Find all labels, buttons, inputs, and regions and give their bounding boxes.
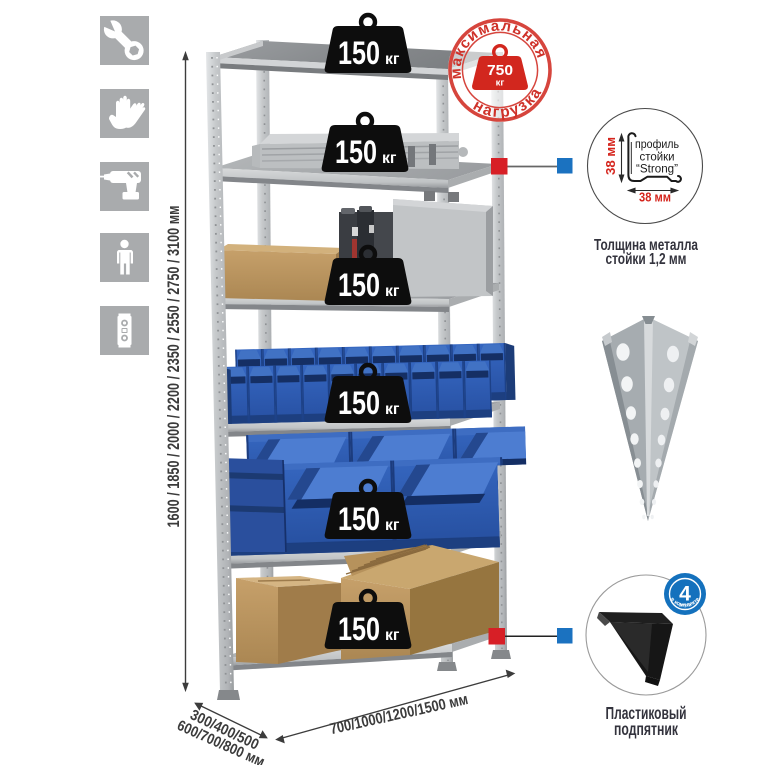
svg-text:профиль: профиль (635, 139, 679, 151)
svg-text:подпятник: подпятник (614, 719, 678, 739)
svg-text:кг: кг (496, 78, 505, 89)
svg-text:стойки: стойки (640, 152, 675, 164)
svg-text:38 мм: 38 мм (639, 190, 671, 205)
svg-text:1600 / 1850 / 2000 / 2200 / 23: 1600 / 1850 / 2000 / 2200 / 2350 / 2550 … (165, 206, 183, 528)
svg-text:38 мм: 38 мм (603, 137, 618, 175)
svg-text:стойки 1,2 мм: стойки 1,2 мм (606, 251, 687, 268)
svg-text:“Strong”: “Strong” (636, 164, 678, 176)
